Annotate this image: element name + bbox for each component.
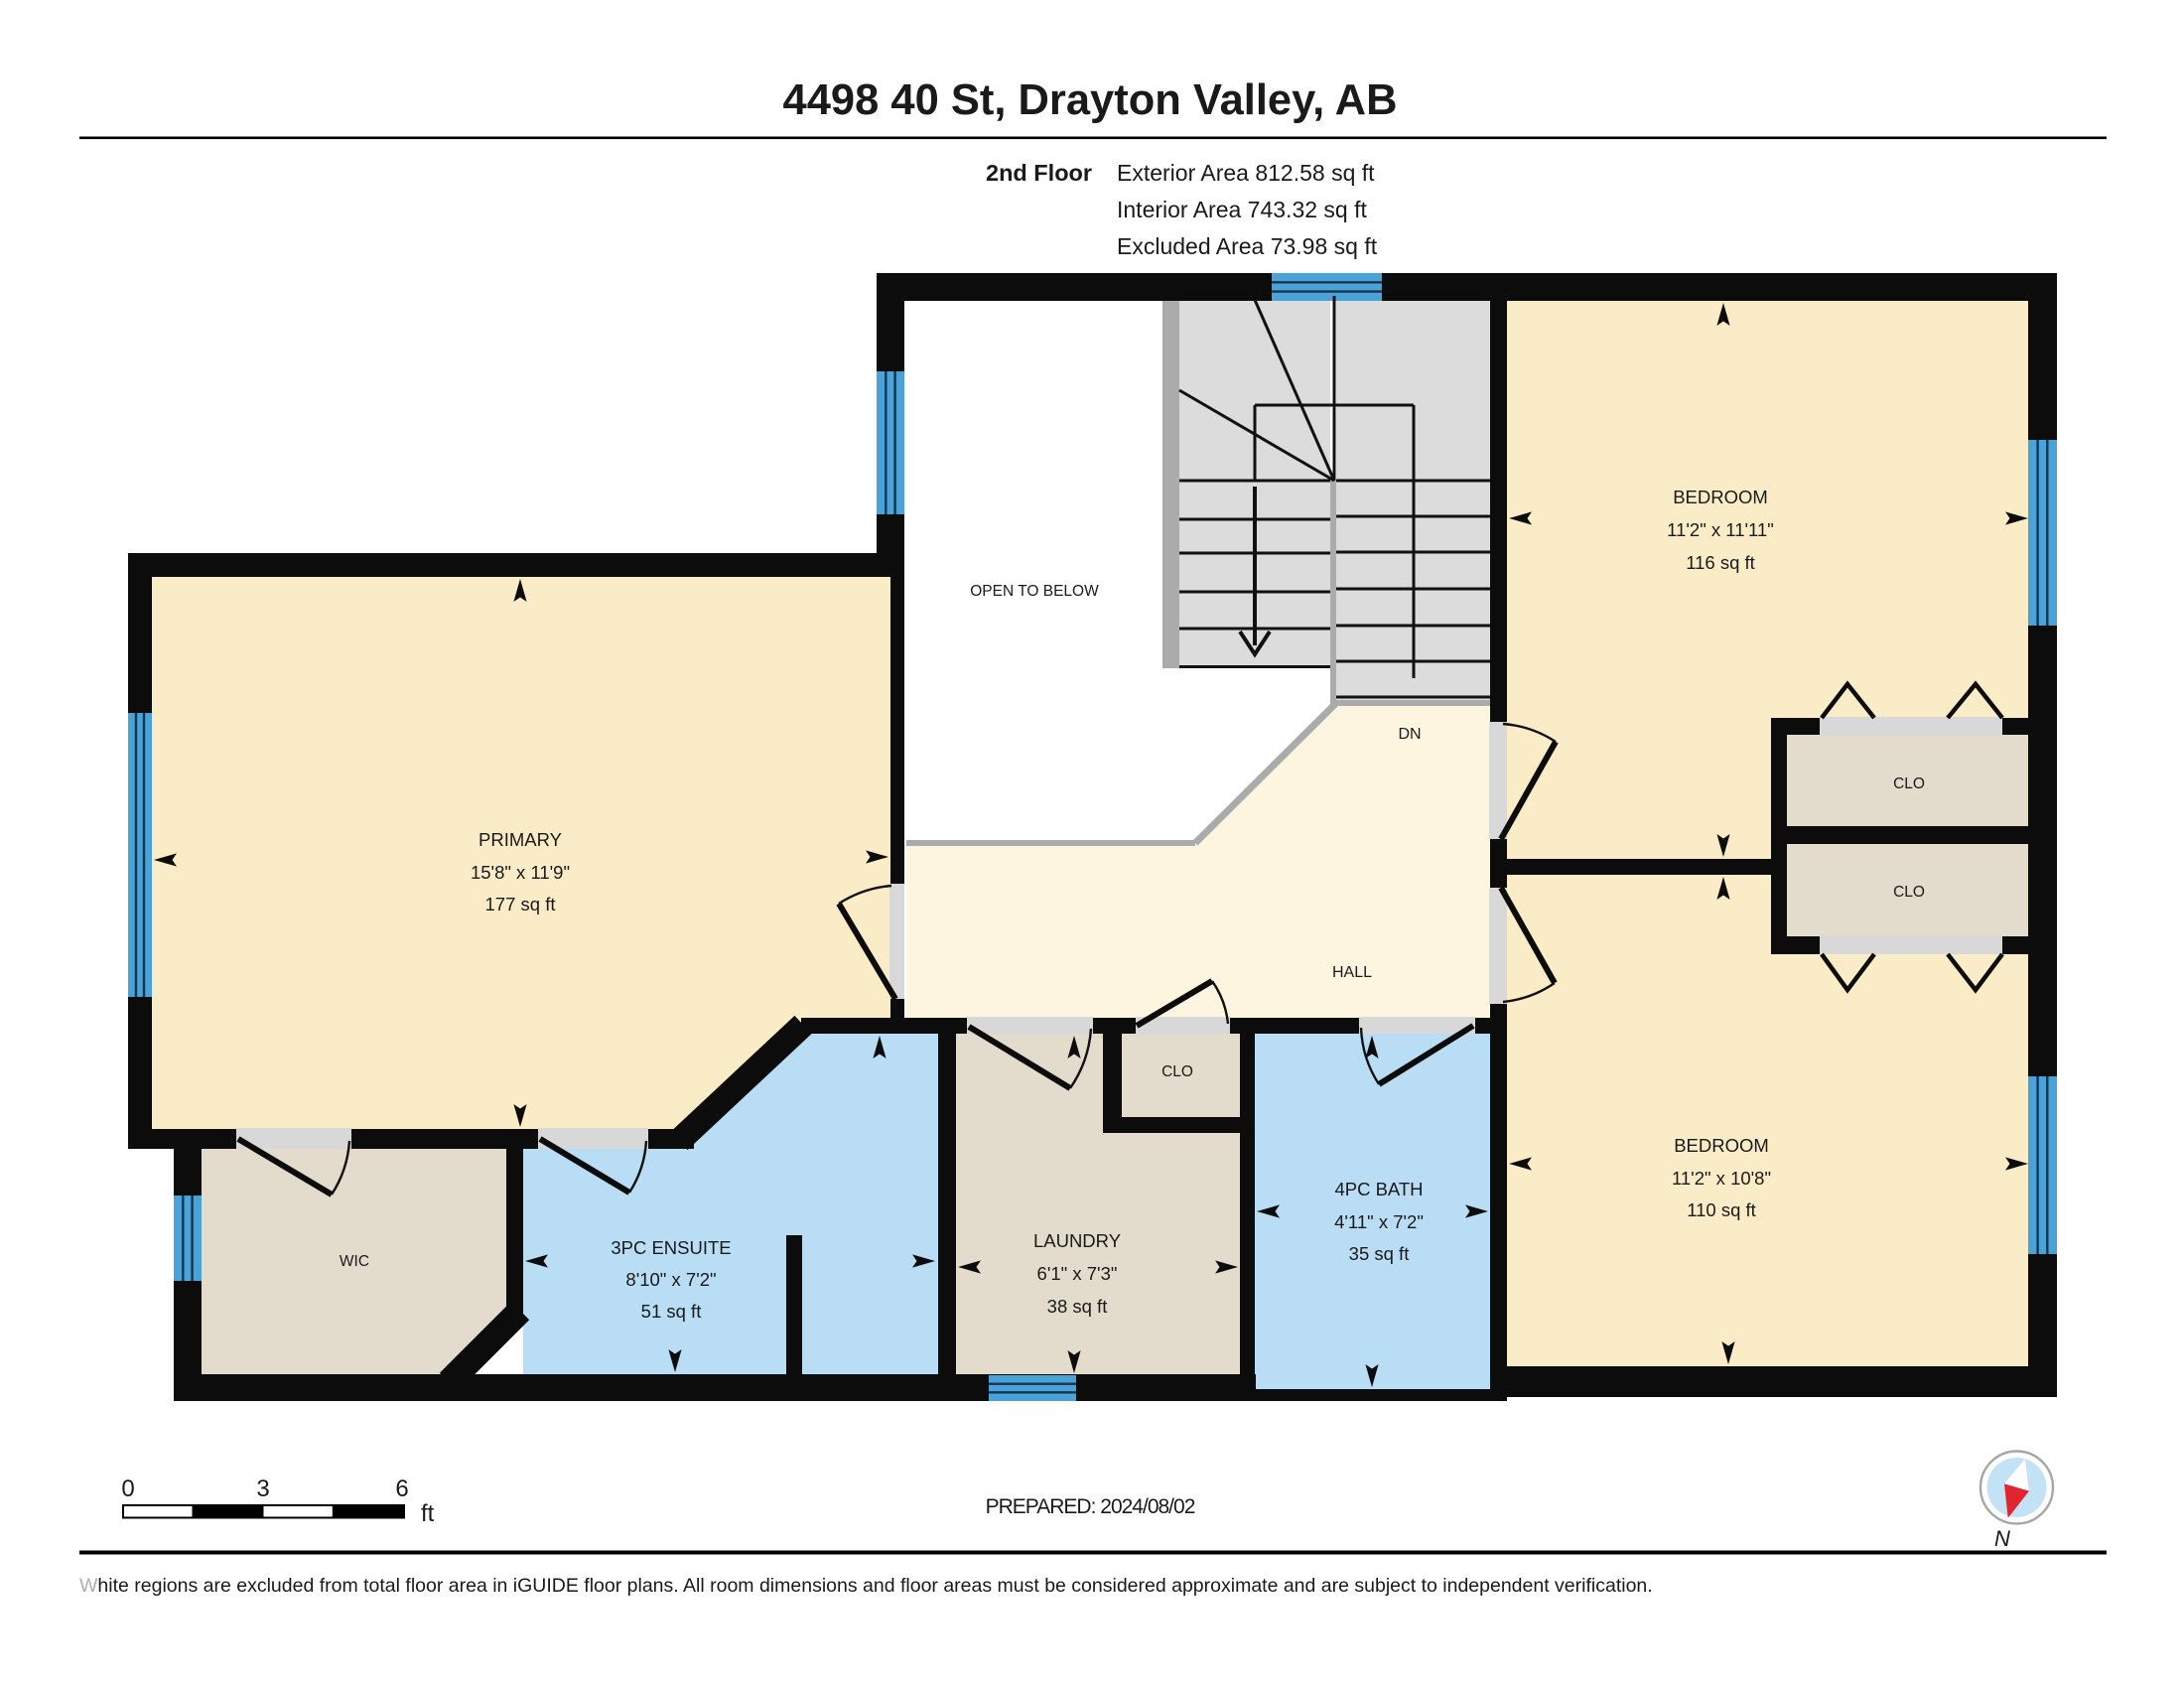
svg-text:11'2" x 11'11": 11'2" x 11'11"	[1667, 519, 1774, 540]
svg-text:PRIMARY: PRIMARY	[478, 829, 562, 850]
svg-text:0: 0	[121, 1476, 134, 1502]
svg-text:11'2" x 10'8": 11'2" x 10'8"	[1672, 1168, 1771, 1189]
svg-text:BEDROOM: BEDROOM	[1673, 487, 1768, 507]
svg-text:4498 40 St, Drayton Valley, AB: 4498 40 St, Drayton Valley, AB	[783, 76, 1398, 124]
svg-text:CLO: CLO	[1893, 884, 1925, 901]
svg-text:WIC: WIC	[340, 1253, 369, 1270]
svg-text:15'8" x 11'9": 15'8" x 11'9"	[471, 862, 570, 883]
svg-text:OPEN TO BELOW: OPEN TO BELOW	[970, 583, 1099, 600]
svg-text:6'1" x 7'3": 6'1" x 7'3"	[1037, 1263, 1118, 1284]
svg-text:BEDROOM: BEDROOM	[1674, 1135, 1769, 1156]
svg-text:4'11" x 7'2": 4'11" x 7'2"	[1334, 1211, 1424, 1232]
svg-text:8'10" x 7'2": 8'10" x 7'2"	[625, 1269, 716, 1290]
svg-text:Excluded Area 73.98 sq ft: Excluded Area 73.98 sq ft	[1117, 233, 1378, 259]
svg-text:6: 6	[395, 1476, 408, 1502]
svg-text:LAUNDRY: LAUNDRY	[1033, 1230, 1121, 1251]
svg-text:Exterior Area 812.58 sq ft: Exterior Area 812.58 sq ft	[1117, 160, 1375, 186]
svg-text:3PC ENSUITE: 3PC ENSUITE	[611, 1237, 731, 1258]
svg-text:CLO: CLO	[1893, 775, 1925, 792]
svg-text:4PC BATH: 4PC BATH	[1334, 1179, 1423, 1199]
svg-text:177 sq ft: 177 sq ft	[485, 894, 556, 914]
svg-text:116 sq ft: 116 sq ft	[1686, 552, 1755, 573]
svg-text:Interior Area 743.32 sq ft: Interior Area 743.32 sq ft	[1117, 197, 1367, 222]
svg-text:51 sq ft: 51 sq ft	[641, 1301, 702, 1322]
svg-text:110 sq ft: 110 sq ft	[1687, 1199, 1756, 1220]
svg-text:3: 3	[256, 1476, 269, 1502]
svg-text:HALL: HALL	[1332, 964, 1372, 981]
svg-text:CLO: CLO	[1161, 1063, 1193, 1080]
svg-text:35 sq ft: 35 sq ft	[1349, 1243, 1410, 1264]
svg-text:White regions are excluded fro: White regions are excluded from total fl…	[79, 1575, 1653, 1597]
svg-text:ft: ft	[421, 1500, 435, 1527]
svg-text:2nd Floor: 2nd Floor	[986, 160, 1092, 186]
svg-text:N: N	[1994, 1526, 2010, 1551]
svg-text:DN: DN	[1398, 726, 1421, 743]
svg-text:38 sq ft: 38 sq ft	[1047, 1296, 1108, 1317]
svg-text:PREPARED: 2024/08/02: PREPARED: 2024/08/02	[986, 1495, 1195, 1518]
